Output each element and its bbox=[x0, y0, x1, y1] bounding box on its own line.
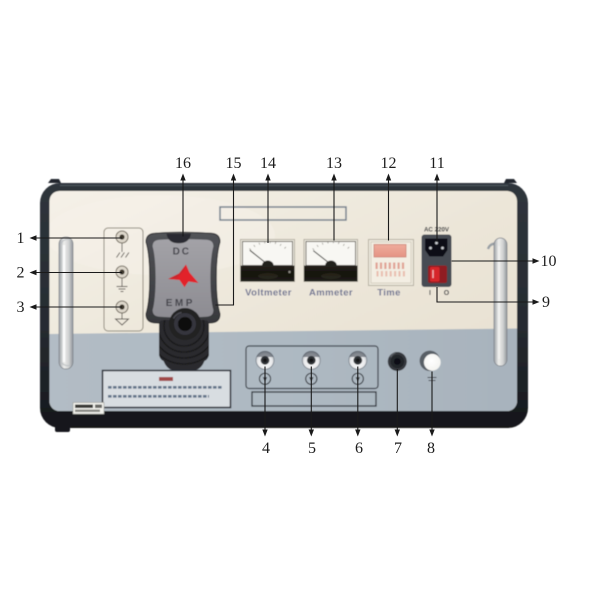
svg-text:DC: DC bbox=[173, 247, 191, 258]
svg-text:4: 4 bbox=[262, 440, 270, 457]
svg-text:Time: Time bbox=[377, 288, 401, 299]
svg-text:13: 13 bbox=[326, 155, 342, 172]
svg-text:2: 2 bbox=[17, 265, 25, 282]
svg-text:10: 10 bbox=[541, 253, 557, 270]
svg-text:9: 9 bbox=[542, 294, 550, 311]
svg-text:16: 16 bbox=[175, 155, 191, 172]
svg-text:Voltmeter: Voltmeter bbox=[245, 288, 292, 299]
svg-text:Ammeter: Ammeter bbox=[309, 288, 353, 299]
svg-text:I: I bbox=[429, 290, 431, 297]
svg-text:6: 6 bbox=[355, 440, 363, 457]
svg-text:7: 7 bbox=[394, 440, 402, 457]
svg-text:12: 12 bbox=[381, 155, 397, 172]
svg-text:8: 8 bbox=[427, 440, 435, 457]
svg-text:14: 14 bbox=[260, 155, 276, 172]
svg-text:EMP: EMP bbox=[166, 298, 195, 309]
svg-text:5: 5 bbox=[308, 440, 316, 457]
svg-text:15: 15 bbox=[226, 155, 242, 172]
svg-text:11: 11 bbox=[429, 155, 444, 172]
svg-text:O: O bbox=[444, 290, 450, 297]
svg-text:3: 3 bbox=[17, 299, 25, 316]
svg-text:1: 1 bbox=[17, 230, 25, 247]
